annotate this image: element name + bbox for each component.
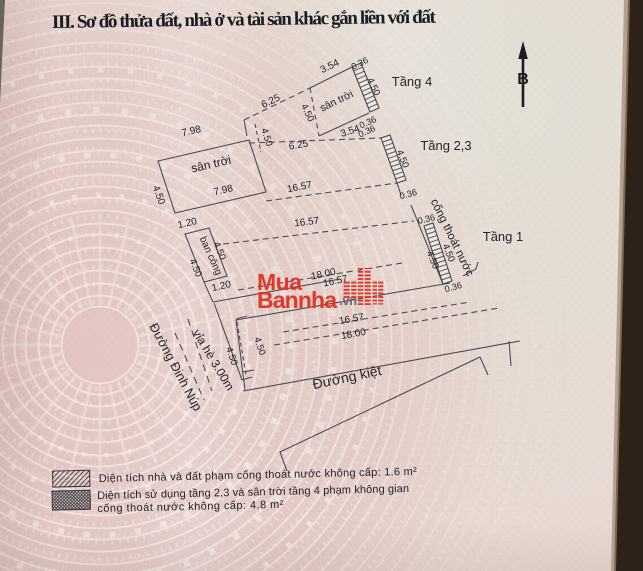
svg-text:Bannha: Bannha	[257, 287, 337, 313]
svg-text:B: B	[517, 71, 529, 88]
svg-text:Tầng 1: Tầng 1	[483, 229, 523, 244]
svg-text:Tầng 4: Tầng 4	[392, 74, 432, 89]
svg-text:Tầng 2,3: Tầng 2,3	[420, 138, 471, 153]
